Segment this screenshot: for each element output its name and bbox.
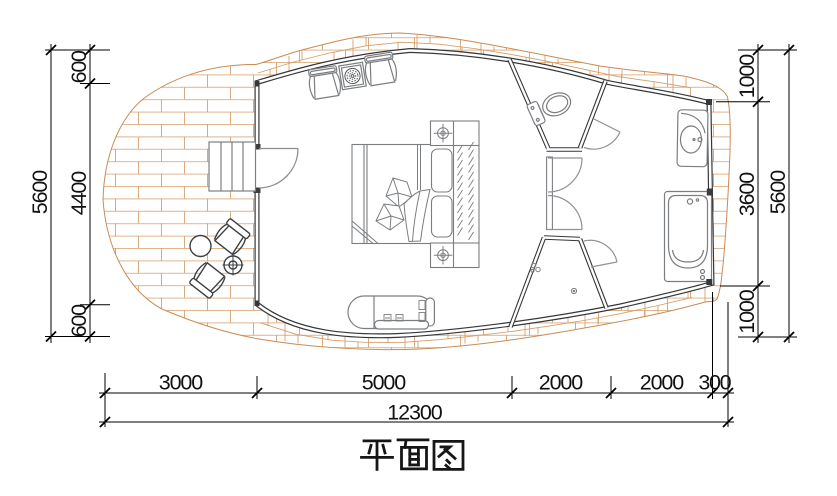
svg-text:1000: 1000 bbox=[735, 54, 759, 98]
svg-text:600: 600 bbox=[67, 304, 91, 337]
svg-text:300: 300 bbox=[698, 371, 731, 395]
svg-text:600: 600 bbox=[67, 50, 91, 83]
svg-text:5000: 5000 bbox=[362, 371, 406, 395]
svg-text:12300: 12300 bbox=[387, 401, 443, 425]
svg-text:2000: 2000 bbox=[640, 371, 684, 395]
svg-text:4400: 4400 bbox=[67, 171, 91, 215]
svg-text:3600: 3600 bbox=[735, 172, 759, 216]
svg-text:2000: 2000 bbox=[539, 371, 583, 395]
svg-text:5600: 5600 bbox=[766, 170, 790, 214]
svg-text:3000: 3000 bbox=[159, 371, 203, 395]
svg-text:1000: 1000 bbox=[735, 289, 759, 333]
svg-text:5600: 5600 bbox=[28, 170, 52, 214]
